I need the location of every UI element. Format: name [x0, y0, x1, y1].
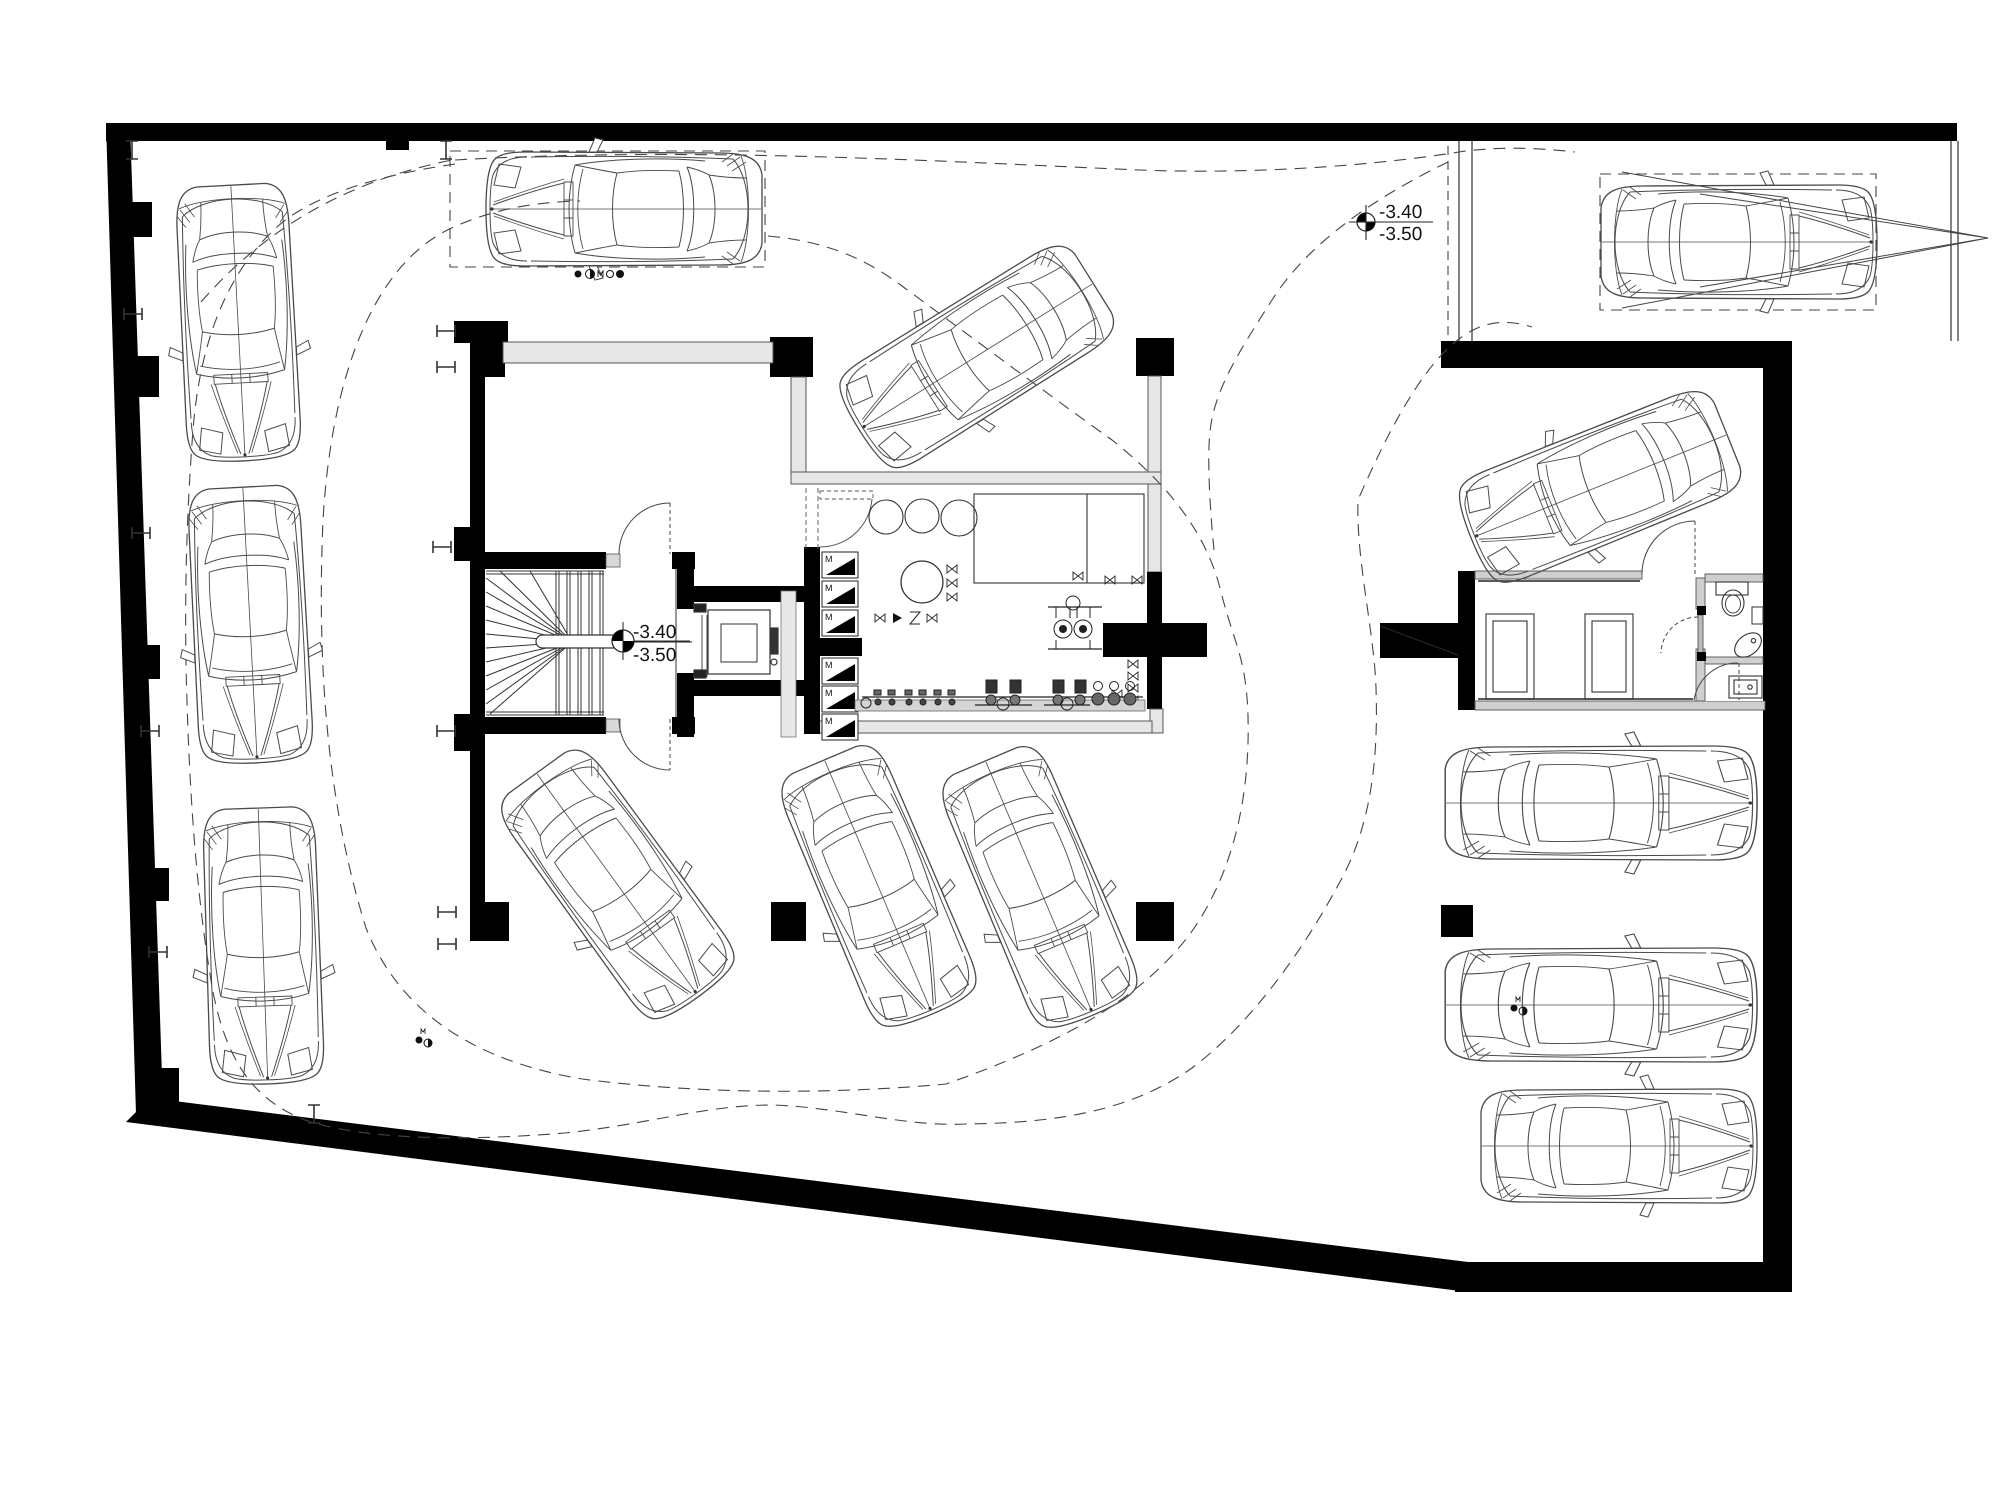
- svg-text:-3.50: -3.50: [633, 645, 676, 666]
- svg-text:M: M: [825, 660, 833, 670]
- svg-text:M: M: [825, 583, 833, 593]
- svg-text:M: M: [825, 688, 833, 698]
- svg-text:M: M: [825, 612, 833, 622]
- svg-text:M: M: [825, 554, 833, 564]
- svg-text:-3.40: -3.40: [633, 622, 676, 643]
- svg-text:-3.40: -3.40: [1379, 202, 1422, 223]
- svg-text:-3.50: -3.50: [1379, 224, 1422, 245]
- svg-text:M: M: [825, 716, 833, 726]
